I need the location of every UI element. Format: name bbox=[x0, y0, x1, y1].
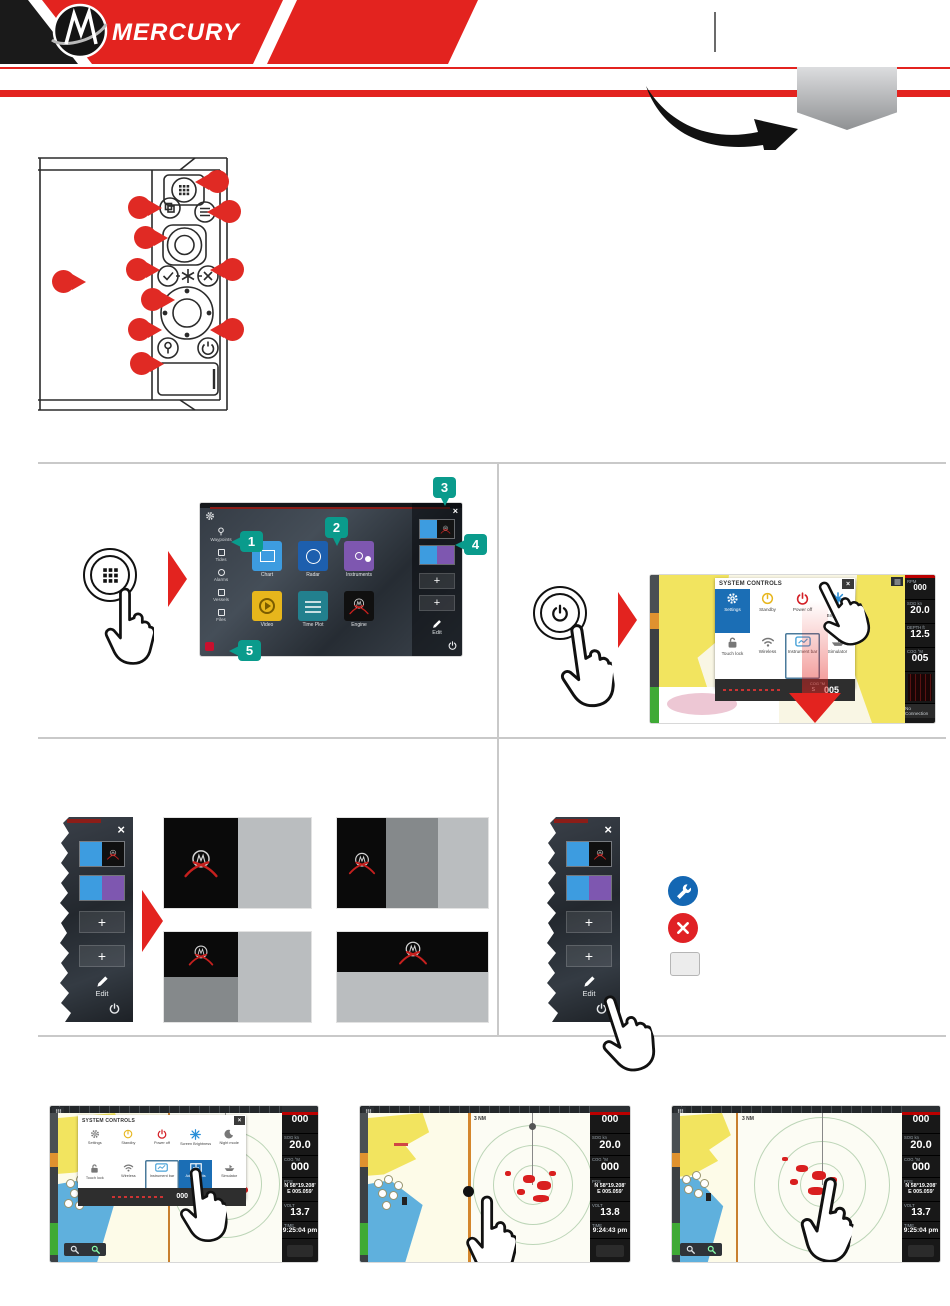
callout-pin-pages bbox=[128, 196, 151, 219]
zoom-in-icon bbox=[70, 1245, 79, 1254]
arrow-right-icon bbox=[618, 592, 637, 648]
app-label: Radar bbox=[298, 572, 328, 578]
favorite-preset-1[interactable] bbox=[79, 841, 125, 867]
callout-pin-waypoint bbox=[128, 318, 151, 341]
cog-value: 000 bbox=[590, 1162, 630, 1174]
settings-gear-icon[interactable] bbox=[205, 511, 215, 521]
brand-wordmark: MERCURY bbox=[112, 19, 241, 46]
wifi-icon bbox=[761, 636, 775, 647]
cog-value: 000 bbox=[282, 1162, 318, 1174]
cog-value: 000 bbox=[902, 1162, 940, 1174]
wifi-icon bbox=[123, 1163, 134, 1172]
lock-icon bbox=[90, 1163, 99, 1174]
wireless-tile[interactable]: Wireless bbox=[750, 633, 785, 679]
callout-5: 5 bbox=[238, 640, 261, 661]
standby-icon bbox=[761, 592, 774, 605]
add-favorite-button[interactable]: + bbox=[566, 945, 612, 967]
instruments-icon bbox=[355, 552, 363, 560]
wrench-icon bbox=[675, 883, 691, 899]
zoom-buttons[interactable] bbox=[680, 1243, 722, 1256]
lon-value: E 005.059' bbox=[590, 1190, 630, 1196]
tool-label: Vessels bbox=[213, 597, 229, 602]
chart-pane[interactable] bbox=[672, 1113, 736, 1262]
chart-side-tabs[interactable] bbox=[650, 575, 659, 723]
edit-pencil-icon[interactable] bbox=[583, 975, 596, 988]
app-tile-timeplot[interactable]: Time Plot bbox=[298, 591, 328, 628]
tool-label: Tides bbox=[215, 557, 226, 562]
favorite-preset-2[interactable] bbox=[79, 875, 125, 901]
engine-mercury-icon bbox=[440, 525, 451, 534]
brightness-icon bbox=[190, 1129, 201, 1140]
panel-menu-icon[interactable] bbox=[891, 577, 903, 586]
rpm-value: 000 bbox=[905, 584, 935, 592]
close-icon[interactable]: × bbox=[453, 507, 458, 516]
sog-value: 20.0 bbox=[902, 1140, 940, 1152]
sonar-history-strip bbox=[908, 674, 932, 701]
configure-icon bbox=[668, 876, 698, 906]
sog-value: 20.0 bbox=[590, 1140, 630, 1152]
gear-icon bbox=[90, 1129, 100, 1139]
favorite-preset-2[interactable] bbox=[566, 875, 612, 901]
favorite-preset-1[interactable] bbox=[566, 841, 612, 867]
standby-tile[interactable]: Standby bbox=[112, 1126, 146, 1160]
callout-2: 2 bbox=[325, 517, 348, 538]
app-tile-instruments[interactable]: Instruments bbox=[344, 541, 374, 578]
settings-tile[interactable]: Settings bbox=[78, 1126, 112, 1160]
app-tile-engine[interactable]: Engine bbox=[344, 591, 374, 628]
tides-icon bbox=[218, 549, 225, 556]
edit-label: Edit bbox=[79, 989, 125, 998]
header-red-band-2 bbox=[267, 0, 478, 64]
files-icon bbox=[218, 609, 225, 616]
divider-v bbox=[497, 462, 499, 1035]
x-icon bbox=[676, 921, 690, 935]
hand-cursor-icon bbox=[168, 1163, 230, 1248]
app-tile-radar[interactable]: Radar bbox=[298, 541, 328, 578]
plus-icon: + bbox=[434, 575, 440, 587]
header-separator-line bbox=[714, 12, 716, 52]
waypoints-icon bbox=[217, 527, 225, 536]
mercury-logo-icon bbox=[187, 943, 215, 967]
gear-icon bbox=[726, 592, 739, 605]
close-button[interactable]: × bbox=[234, 1116, 245, 1125]
volt-value: 13.7 bbox=[902, 1208, 940, 1219]
hand-cursor-icon bbox=[578, 985, 664, 1086]
simulator-icon bbox=[224, 1163, 235, 1172]
standby-tile[interactable]: Standby bbox=[750, 589, 785, 633]
screenshot-resized-split: 3 NM 000 SOG kn20.0 COG °M000 POS N 58°1… bbox=[672, 1106, 940, 1262]
radar-icon bbox=[306, 549, 321, 564]
arrow-right-icon bbox=[142, 890, 163, 952]
tool-alarms[interactable]: Alarms bbox=[202, 569, 240, 582]
hand-cursor-icon bbox=[458, 1194, 516, 1262]
instrument-panel: RPM 000 SOG kn20.0 DEPTH ft12.5 COG °M00… bbox=[905, 575, 935, 723]
chart-side-tabs[interactable] bbox=[672, 1113, 680, 1262]
app-tile-video[interactable]: Video bbox=[252, 591, 282, 628]
engine-mercury-icon bbox=[106, 849, 120, 860]
favorites-panel: × + + Edit bbox=[412, 503, 462, 656]
power-key-icon bbox=[198, 338, 218, 358]
favorite-preset-1[interactable] bbox=[419, 519, 455, 539]
power-icon[interactable] bbox=[448, 641, 457, 650]
zoom-out-icon bbox=[91, 1245, 100, 1254]
plus-icon: + bbox=[434, 597, 440, 609]
chart-side-tabs[interactable] bbox=[360, 1113, 368, 1262]
hand-cursor-icon bbox=[546, 618, 618, 715]
callout-3: 3 bbox=[433, 477, 456, 498]
header-banner: MERCURY bbox=[0, 0, 950, 64]
rpm-value: 000 bbox=[282, 1115, 318, 1126]
app-label: Time Plot bbox=[298, 622, 328, 628]
callout-4: 4 bbox=[464, 534, 487, 555]
tool-tides[interactable]: Tides bbox=[202, 549, 240, 562]
instrument-panel: 000 SOG kn20.0 COG °M000 POS N 58°19.208… bbox=[282, 1106, 318, 1262]
swipe-down-arrow-icon bbox=[789, 693, 841, 723]
edit-label: Edit bbox=[412, 630, 462, 636]
save-swatch bbox=[670, 952, 700, 976]
close-icon[interactable]: × bbox=[117, 823, 125, 836]
screenshot-drag-divider: 3 NM 000 SOG kn20.0 COG °M000 POS N 58°1… bbox=[360, 1106, 630, 1262]
zoom-in-icon bbox=[686, 1245, 695, 1254]
connection-status: No Connection bbox=[905, 704, 935, 718]
add-favorite-button[interactable]: + bbox=[79, 945, 125, 967]
callout-pin-menu bbox=[218, 200, 241, 223]
close-icon[interactable]: × bbox=[604, 823, 612, 836]
brightness-tile[interactable]: Screen Brightness bbox=[179, 1126, 213, 1160]
standby-icon bbox=[123, 1129, 133, 1139]
callout-pin-knob bbox=[134, 226, 157, 249]
rpm-value: 000 bbox=[590, 1115, 630, 1126]
layout-example-2pane bbox=[164, 818, 311, 908]
timeplot-icon bbox=[305, 600, 321, 613]
delete-icon bbox=[668, 913, 698, 943]
touch-lock-tile[interactable]: Touch lock bbox=[715, 633, 750, 679]
chart-pane[interactable] bbox=[360, 1113, 468, 1262]
system-controls-screenshot: SYSTEM CONTROLS × Settings Standby Power… bbox=[650, 575, 935, 723]
time-value: 9:25:04 pm bbox=[282, 1228, 318, 1235]
callout-pin-enter bbox=[126, 258, 149, 281]
manual-page: MERCURY bbox=[0, 0, 950, 1306]
zoom-buttons[interactable] bbox=[64, 1243, 106, 1256]
curved-arrow-icon bbox=[640, 80, 810, 150]
moon-icon bbox=[224, 1129, 234, 1139]
add-favorite-button[interactable]: + bbox=[79, 911, 125, 933]
divider-h3 bbox=[38, 1035, 946, 1037]
app-label: Chart bbox=[252, 572, 282, 578]
screenshot-adjust-splits-menu: SYSTEM CONTROLS × Settings Standby Power… bbox=[50, 1106, 318, 1262]
volt-value: 13.8 bbox=[590, 1208, 630, 1219]
instrument-panel: 000 SOG kn20.0 COG °M000 POS N 58°19.208… bbox=[902, 1106, 940, 1262]
engine-mercury-icon bbox=[593, 849, 607, 860]
edit-pencil-icon[interactable] bbox=[432, 619, 442, 629]
arrow-right-icon bbox=[168, 551, 187, 607]
instrument-panel: 000 SOG kn20.0 COG °M000 POS N 58°19.208… bbox=[590, 1106, 630, 1262]
radar-range: 3 NM bbox=[474, 1116, 486, 1122]
add-favorite-button[interactable]: + bbox=[419, 595, 455, 611]
layout-example-2row bbox=[337, 932, 488, 1022]
lock-icon bbox=[727, 636, 738, 649]
lon-value: E 005.059' bbox=[902, 1190, 940, 1196]
power-off-tile[interactable]: Power off bbox=[145, 1126, 179, 1160]
callout-pin-arrowpad bbox=[141, 288, 164, 311]
hand-cursor-icon bbox=[96, 586, 154, 668]
mercury-home-icon[interactable] bbox=[205, 642, 214, 651]
chart-icon bbox=[260, 550, 275, 562]
app-label: Engine bbox=[344, 622, 374, 628]
dialog-title: SYSTEM CONTROLS bbox=[78, 1115, 246, 1126]
cog-value: 005 bbox=[905, 654, 935, 665]
settings-tile[interactable]: Settings bbox=[715, 589, 750, 633]
add-favorite-button[interactable]: + bbox=[566, 911, 612, 933]
tool-label: Files bbox=[216, 617, 226, 622]
depth-value: 12.5 bbox=[905, 630, 935, 641]
callout-1: 1 bbox=[240, 531, 263, 552]
callout-pin-card bbox=[130, 352, 153, 375]
power-icon bbox=[157, 1129, 167, 1139]
volt-value: 13.7 bbox=[282, 1208, 318, 1219]
time-value: 9:25:04 pm bbox=[902, 1228, 940, 1235]
layout-example-quad bbox=[164, 932, 311, 1022]
power-icon[interactable] bbox=[109, 1003, 120, 1014]
tool-files[interactable]: Files bbox=[202, 609, 240, 622]
sog-value: 20.0 bbox=[282, 1140, 318, 1152]
layout-example-3pane bbox=[337, 818, 488, 908]
chart-side-tabs[interactable] bbox=[50, 1113, 58, 1262]
tool-vessels[interactable]: Vessels bbox=[202, 589, 240, 602]
divider-h1 bbox=[38, 462, 946, 464]
alarms-icon bbox=[218, 569, 225, 576]
rpm-value: 000 bbox=[902, 1115, 940, 1126]
tool-label: Alarms bbox=[214, 577, 228, 582]
lon-value: E 005.059' bbox=[282, 1190, 318, 1196]
divider-h2 bbox=[38, 737, 946, 739]
time-value: 9:24:43 pm bbox=[590, 1228, 630, 1235]
callout-pin-exit bbox=[221, 258, 244, 281]
mercury-logo-icon bbox=[347, 850, 377, 876]
edit-pencil-icon[interactable] bbox=[96, 975, 109, 988]
app-label: Instruments bbox=[344, 572, 374, 578]
sog-value: 20.0 bbox=[905, 606, 935, 617]
page-corner-tab[interactable] bbox=[797, 67, 897, 130]
favorites-strip-screenshot: × + + Edit bbox=[53, 817, 133, 1022]
mercury-logo-icon bbox=[182, 847, 220, 879]
radar-range: 3 NM bbox=[742, 1116, 754, 1122]
engine-mercury-icon bbox=[348, 597, 370, 615]
instrument-bar-icon bbox=[155, 1163, 168, 1172]
app-label: Video bbox=[252, 622, 282, 628]
callout-pin-power bbox=[221, 318, 244, 341]
video-icon bbox=[259, 598, 275, 614]
callout-pin-apps bbox=[206, 170, 229, 193]
zoom-out-icon bbox=[707, 1245, 716, 1254]
night-mode-tile[interactable]: Night mode bbox=[212, 1126, 246, 1160]
mercury-logo-icon bbox=[397, 939, 429, 966]
favorites-strip-screenshot: × + + Edit bbox=[540, 817, 620, 1022]
vessels-icon bbox=[218, 589, 225, 596]
add-favorite-button[interactable]: + bbox=[419, 573, 455, 589]
callout-pin-display bbox=[52, 270, 75, 293]
